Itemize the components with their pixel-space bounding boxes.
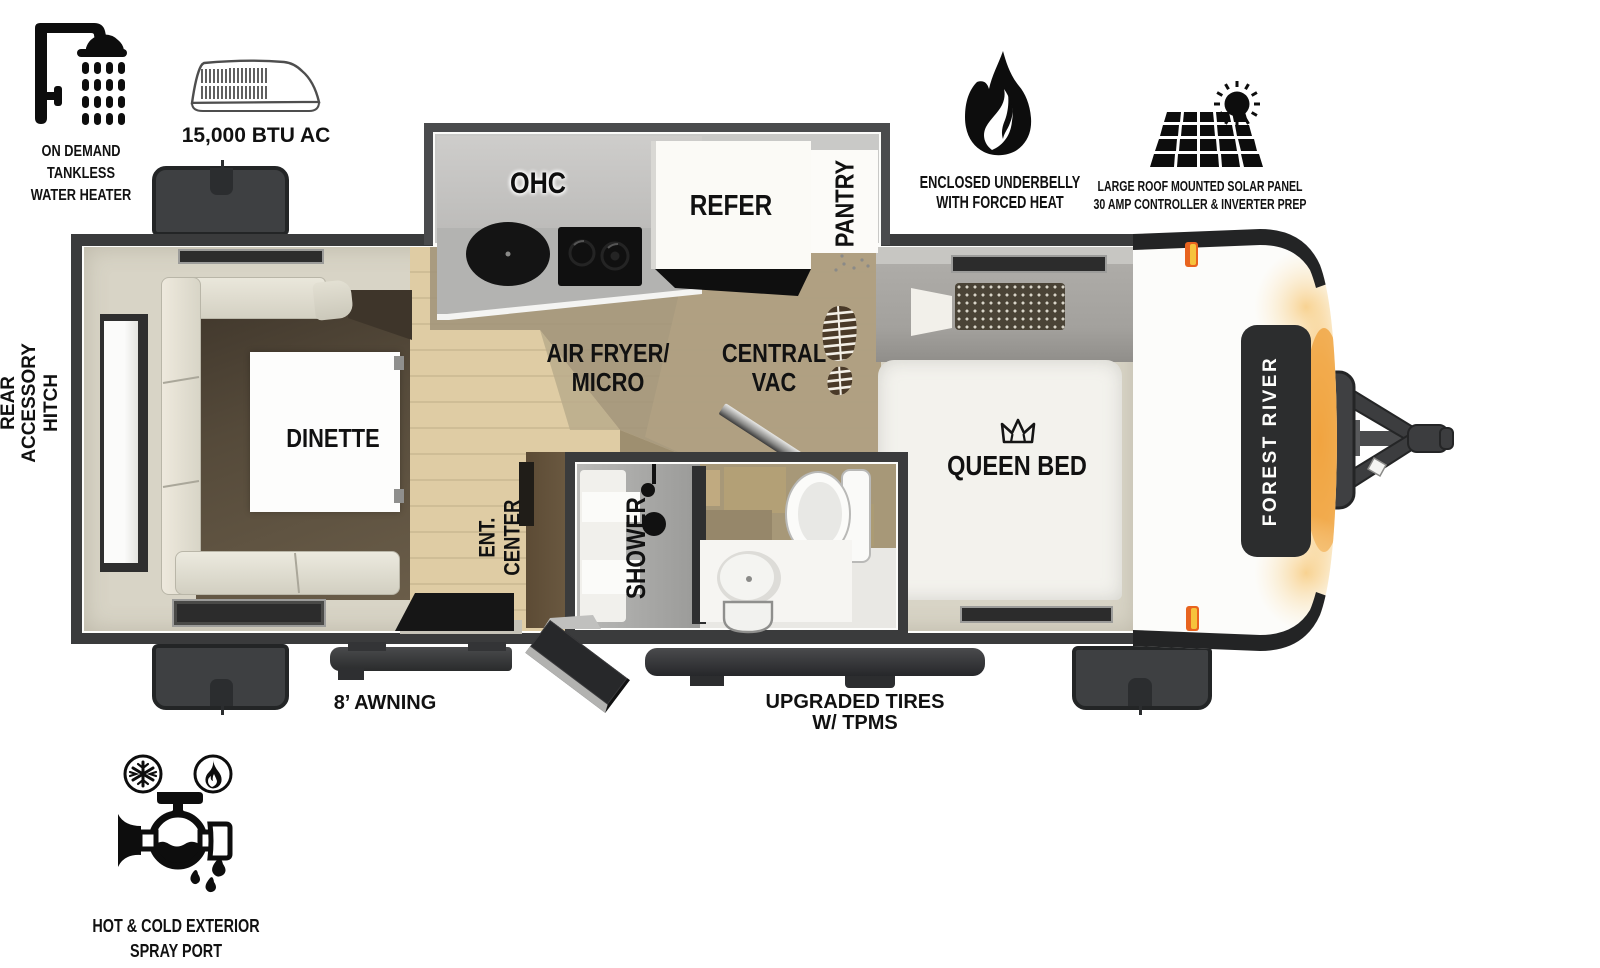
- svg-text:FOREST RIVER: FOREST RIVER: [1260, 356, 1281, 526]
